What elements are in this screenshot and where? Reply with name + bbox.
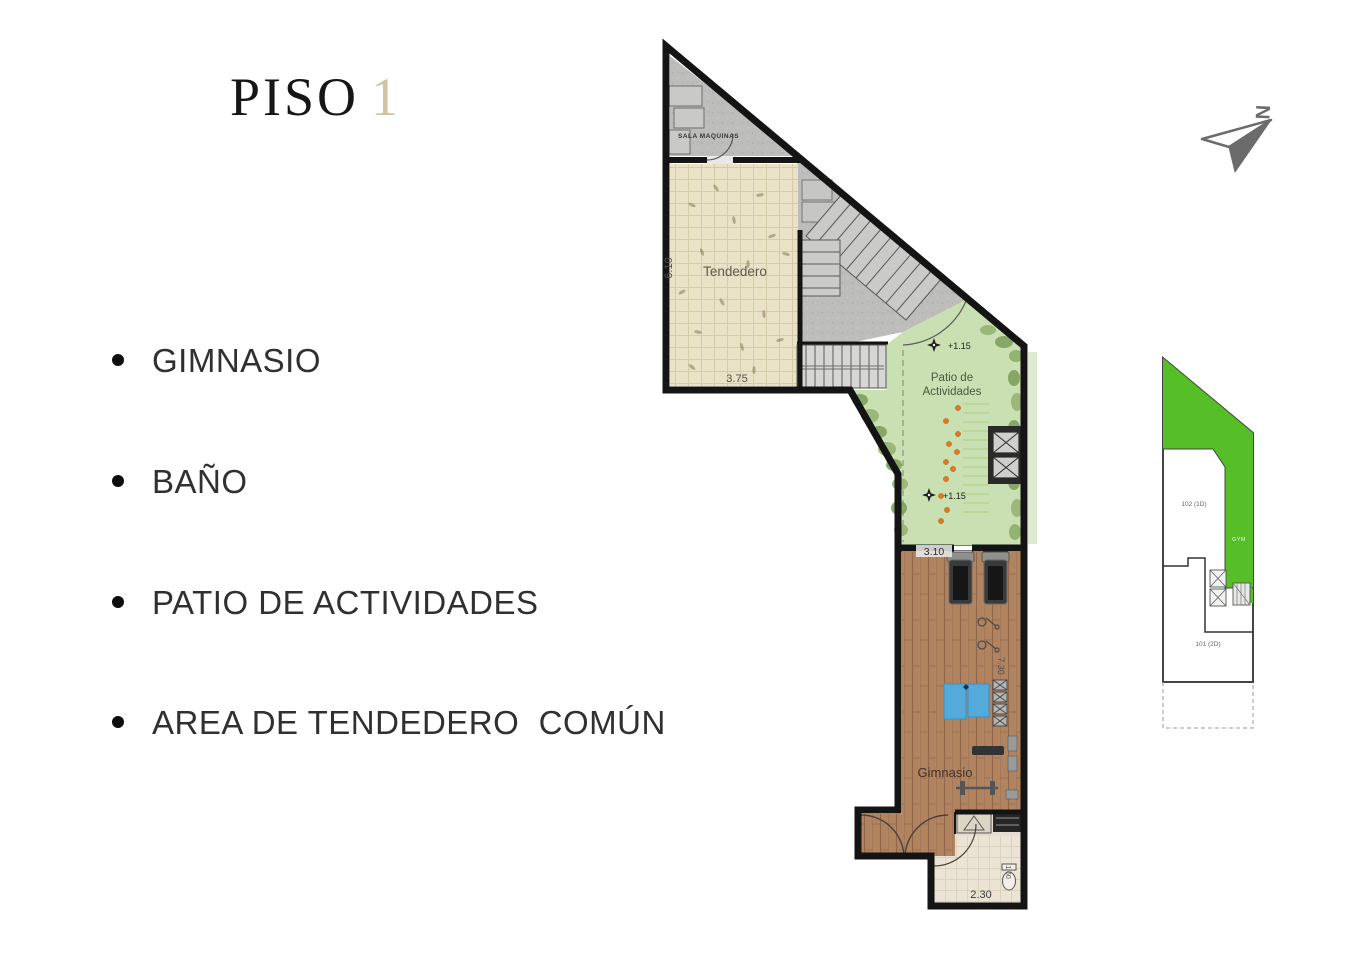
title-number: 1 [371,67,401,127]
gym-bench [972,746,1004,755]
dim-tendedero-height: 6.10 [663,257,675,278]
floor-plan: +1.15 +1.15 [650,33,1042,920]
slide: PISO1 GIMNASIO BAÑO PATIO DE ACTIVIDADES… [0,0,1357,960]
key-plan: 102 (1D) GYM 101 (2D) [1156,350,1258,736]
north-arrow-icon: N [1190,86,1294,182]
level-label: +1.15 [943,491,966,501]
gym-mat [968,684,989,717]
treadmill [947,552,974,604]
level-label: +1.15 [948,341,971,351]
shower-fixture [957,813,991,833]
stairs-lower-flight [797,345,886,388]
treadmill [982,552,1009,604]
exterior-greenery [1028,352,1037,544]
feature-label: BAÑO [152,463,248,501]
feature-patio: PATIO DE ACTIVIDADES [112,584,539,622]
dim-gym-top-width: 3.10 [924,546,945,558]
north-label: N [1251,104,1274,120]
feature-bano: BAÑO [112,463,248,501]
keyplan-future-phase-dashed [1163,682,1253,728]
room-label-tendedero: Tendedero [703,264,767,279]
stairs-side-flight [800,240,840,296]
bullet-icon [112,596,124,608]
elevator-shaft [988,426,1024,484]
level-marker-upper: +1.15 [927,338,971,352]
keyplan-gym-label: GYM [1232,537,1246,543]
feature-label: AREA DE TENDEDERO COMÚN [152,704,666,742]
keyplan-unit-102: 102 (1D) [1181,501,1206,508]
room-label-sala-maquinas: SALA MAQUINAS [678,133,739,140]
page-title: PISO1 [230,66,401,128]
room-label-patio-2: Actividades [923,386,982,398]
keyplan-stairs [1233,583,1250,605]
feature-tendedero: AREA DE TENDEDERO COMÚN [112,704,666,742]
room-label-patio-1: Patio de [931,372,973,384]
bullet-icon [112,354,124,366]
dim-bano-width: 2.30 [970,889,991,901]
feature-gimnasio: GIMNASIO [112,342,321,380]
feature-label: GIMNASIO [152,342,321,380]
gym-mat [944,684,966,719]
keyplan-unit-101: 101 (2D) [1195,641,1220,648]
room-label-gimnasio: Gimnasio [918,765,973,780]
bullet-icon [112,475,124,487]
bullet-icon [112,716,124,728]
dim-bano-height: 1.60 [1004,865,1011,879]
level-marker-lower: +1.15 [922,488,966,502]
title-word: PISO [230,67,359,127]
feature-label: PATIO DE ACTIVIDADES [152,584,539,622]
dim-gym-height: 7.30 [996,657,1006,675]
dim-tendedero-width: 3.75 [726,373,747,385]
